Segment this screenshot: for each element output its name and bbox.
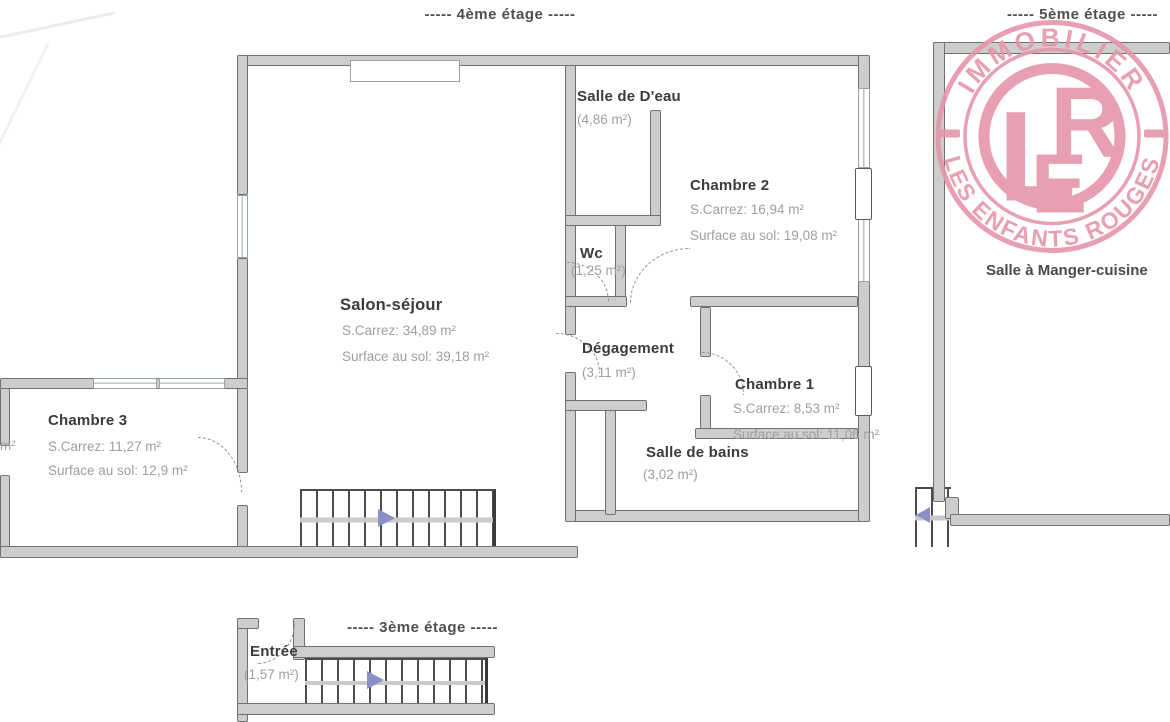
door-swing-arc: [198, 437, 242, 492]
wall-segment: [237, 388, 248, 473]
room-area-salle-deau: (4,86 m²): [577, 112, 632, 127]
floor-plan-canvas: ----- 4ème étage ----- ----- 5ème étage …: [0, 0, 1170, 722]
wall-segment: [950, 514, 1170, 526]
room-sol-chambre2: Surface au sol: 19,08 m²: [690, 228, 837, 243]
window-opening: [858, 88, 870, 168]
wall-segment: [237, 258, 248, 388]
scan-artifact-line: [0, 11, 115, 39]
room-label-chambre3: Chambre 3: [48, 412, 127, 429]
stair-direction-arrow: [367, 671, 384, 689]
wall-segment: [700, 307, 711, 357]
room-sol-chambre1: Surface au sol: 11,06 m²: [733, 427, 879, 442]
room-label-salle-de-bains: Salle de bains: [646, 444, 749, 461]
agency-stamp: IMMOBILIER LES ENFANTS ROUGES L R E: [932, 15, 1170, 258]
room-label-salle-a-manger: Salle à Manger-cuisine: [986, 262, 1148, 279]
window-opening: [93, 378, 157, 389]
wall-segment: [565, 215, 661, 226]
left-unit-area-fragment: m²: [0, 438, 16, 453]
room-carrez-chambre2: S.Carrez: 16,94 m²: [690, 202, 804, 217]
wall-segment: [237, 55, 870, 66]
wall-segment: [690, 296, 858, 307]
room-label-entree: Entrée: [250, 643, 298, 660]
room-area-salle-de-bains: (3,02 m²): [643, 467, 698, 482]
window-opening: [237, 195, 248, 258]
wall-segment: [605, 410, 616, 515]
stamp-letter-e: E: [1031, 137, 1087, 231]
room-label-chambre2: Chambre 2: [690, 177, 769, 194]
door-swing-arc: [630, 248, 690, 303]
room-area-wc: (1,25 m²): [571, 263, 626, 278]
room-label-salle-deau: Salle de D'eau: [577, 88, 681, 105]
wall-segment: [237, 618, 259, 629]
scan-artifact-line: [0, 43, 49, 145]
room-carrez-salon: S.Carrez: 34,89 m²: [342, 323, 456, 338]
window-casement: [855, 366, 872, 416]
room-label-degagement: Dégagement: [582, 340, 674, 357]
room-label-salon: Salon-séjour: [340, 296, 442, 315]
room-carrez-chambre3: S.Carrez: 11,27 m²: [48, 439, 161, 454]
wall-segment: [293, 646, 495, 658]
room-label-chambre1: Chambre 1: [735, 376, 814, 393]
room-carrez-chambre1: S.Carrez: 8,53 m²: [733, 401, 840, 416]
stamp-dash-right: [1144, 130, 1168, 138]
room-area-degagement: (3,11 m²): [582, 365, 636, 380]
wall-segment: [237, 55, 248, 195]
wall-segment: [0, 546, 578, 558]
balcony-door-recess: [350, 60, 460, 82]
wall-segment: [237, 703, 495, 715]
staircase: [305, 658, 488, 706]
window-casement: [855, 168, 872, 220]
window-opening: [159, 378, 225, 389]
stair-direction-arrow: [378, 509, 395, 527]
floor-label-4th: ----- 4ème étage -----: [380, 6, 620, 23]
wall-segment: [565, 372, 576, 522]
room-sol-salon: Surface au sol: 39,18 m²: [342, 349, 489, 364]
room-sol-chambre3: Surface au sol: 12,9 m²: [48, 463, 188, 478]
stamp-dash-left: [936, 130, 960, 138]
staircase: [300, 489, 496, 549]
floor-label-3rd: ----- 3ème étage -----: [330, 619, 515, 636]
stair-direction-arrow: [916, 507, 930, 523]
room-area-entree: (1,57 m²): [244, 667, 299, 682]
room-label-wc: Wc: [580, 245, 603, 262]
wall-segment: [650, 110, 661, 226]
